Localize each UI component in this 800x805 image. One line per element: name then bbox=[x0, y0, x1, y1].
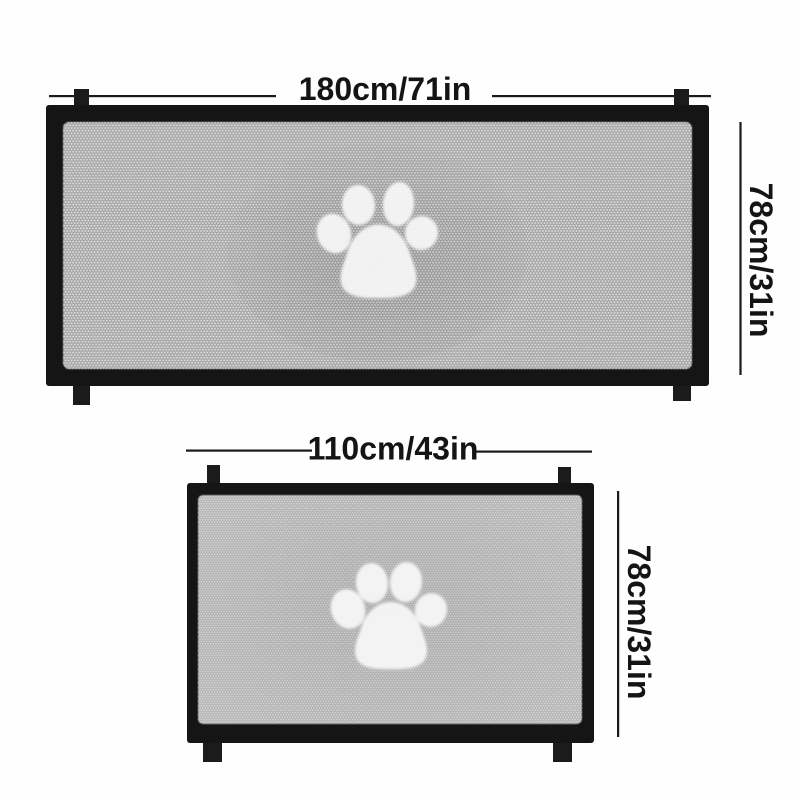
svg-text:180cm/71in: 180cm/71in bbox=[299, 71, 472, 107]
svg-text:78cm/31in: 78cm/31in bbox=[621, 545, 657, 700]
svg-text:110cm/43in: 110cm/43in bbox=[308, 431, 479, 467]
svg-text:78cm/31in: 78cm/31in bbox=[743, 183, 779, 338]
